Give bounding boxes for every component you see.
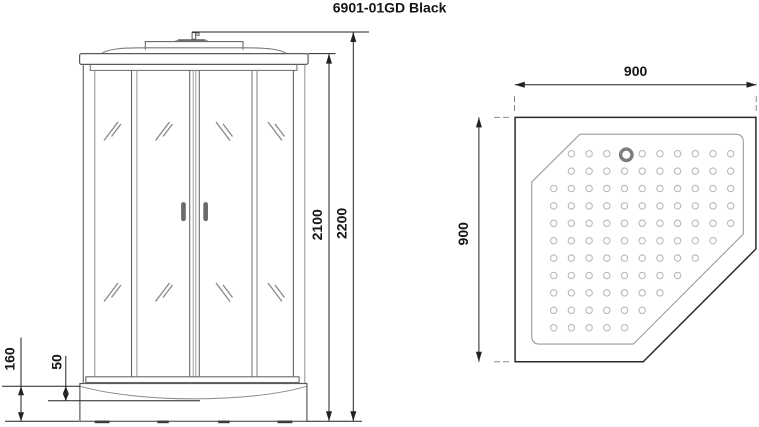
svg-text:160: 160 — [2, 347, 18, 371]
svg-text:900: 900 — [455, 222, 471, 246]
svg-text:2100: 2100 — [309, 209, 325, 240]
svg-text:900: 900 — [624, 63, 648, 79]
svg-text:6901-01GD Black: 6901-01GD Black — [333, 0, 447, 16]
svg-text:2200: 2200 — [334, 208, 350, 239]
svg-text:50: 50 — [49, 354, 65, 370]
